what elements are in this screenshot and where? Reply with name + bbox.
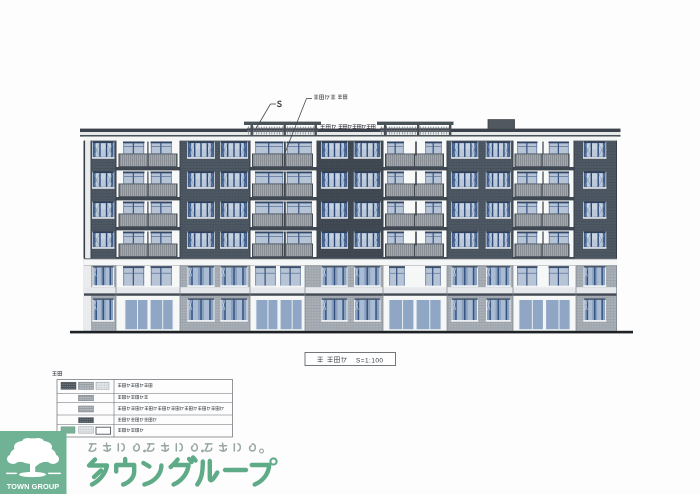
svg-text:TOWN GROUP: TOWN GROUP: [7, 482, 60, 491]
svg-text:S=1:100: S=1:100: [356, 358, 384, 365]
